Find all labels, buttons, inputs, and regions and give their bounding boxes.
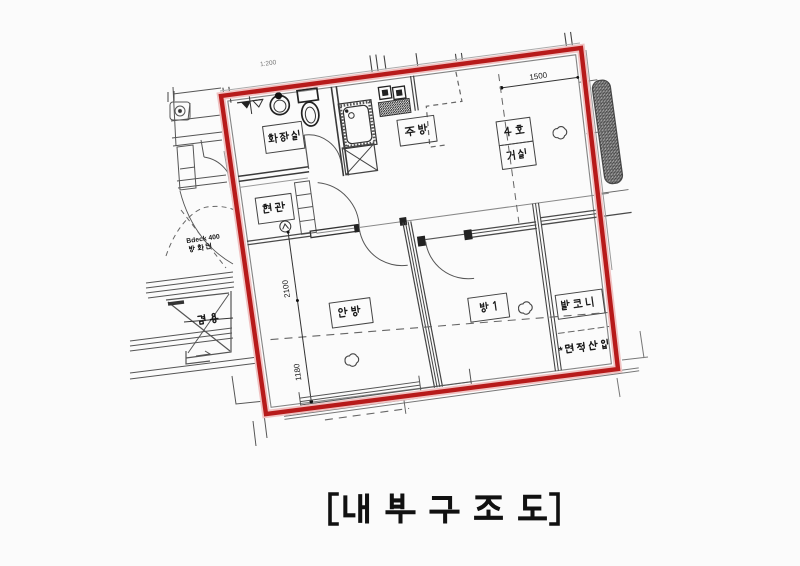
svg-text:2100: 2100 xyxy=(281,279,292,298)
svg-text:*: * xyxy=(558,345,565,358)
svg-text:1180: 1180 xyxy=(292,362,303,381)
svg-text:Bdeck 400: Bdeck 400 xyxy=(186,233,220,245)
svg-text:1500: 1500 xyxy=(529,71,548,82)
svg-text:1:200: 1:200 xyxy=(260,59,277,68)
